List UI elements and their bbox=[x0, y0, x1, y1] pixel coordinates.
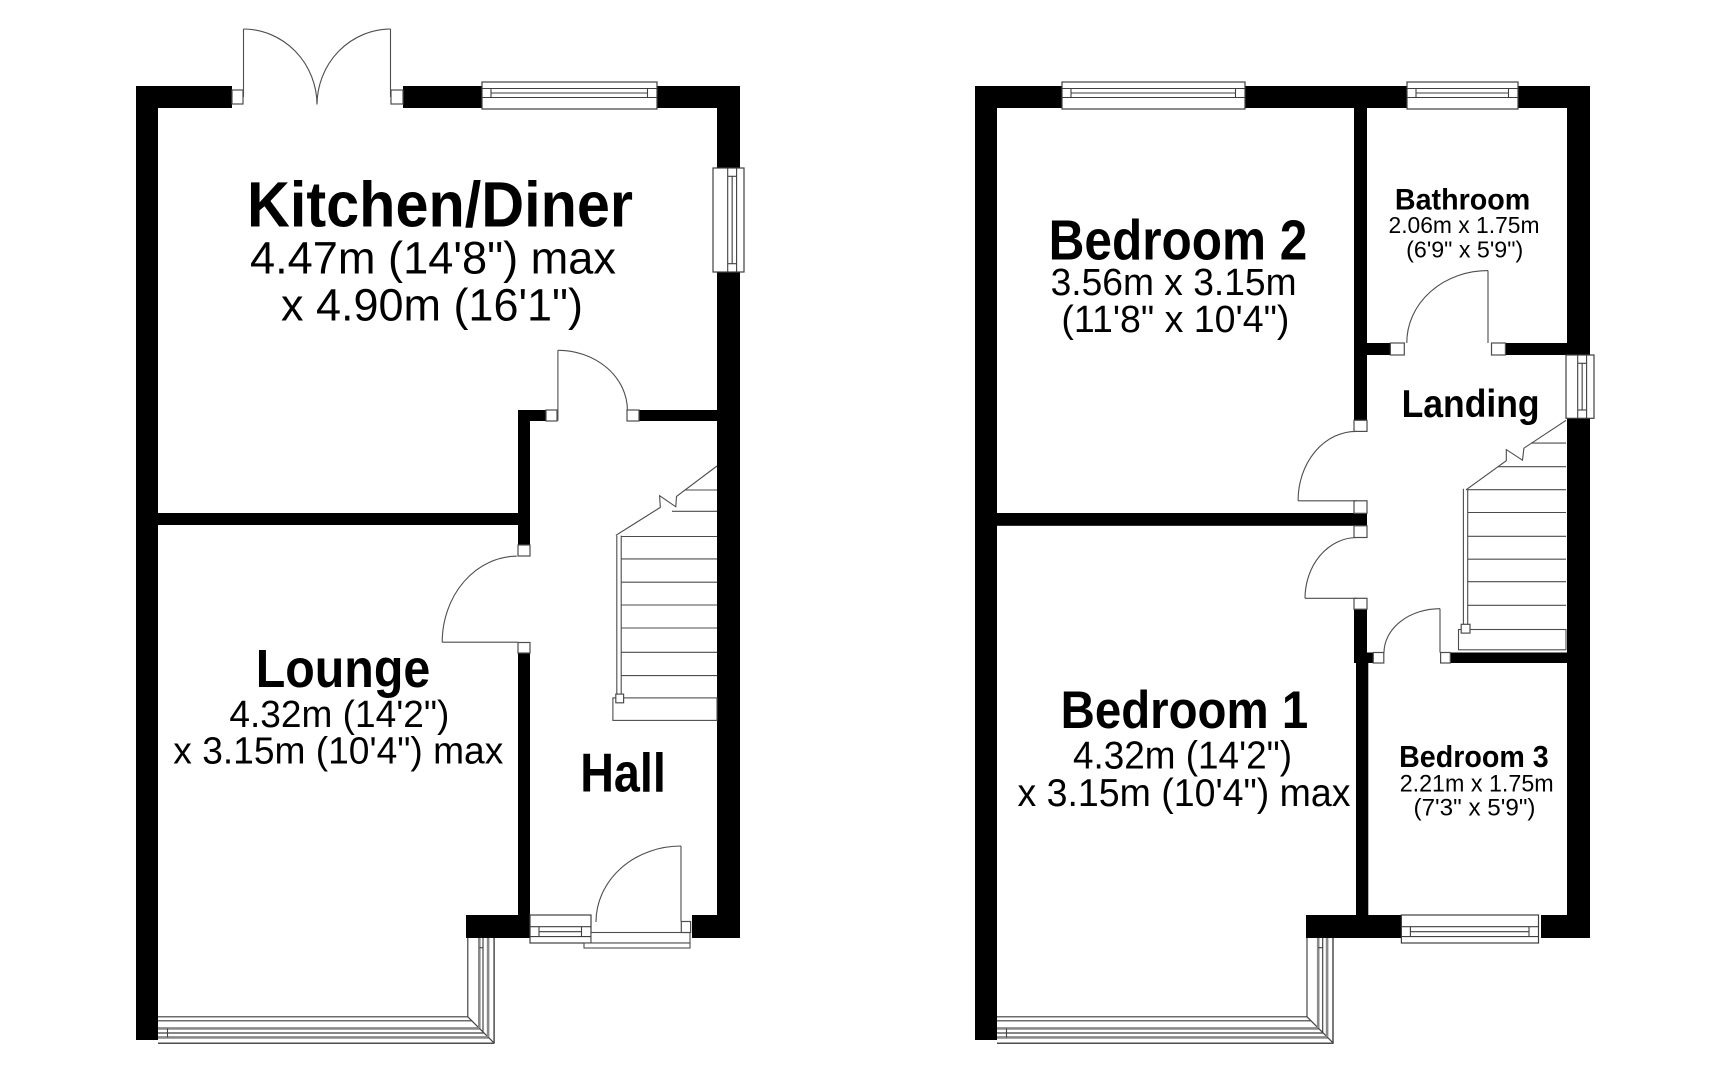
svg-text:Bedroom 1: Bedroom 1 bbox=[1061, 681, 1309, 740]
svg-text:4.47m (14'8") max: 4.47m (14'8") max bbox=[250, 233, 617, 284]
svg-text:(7'3" x 5'9"): (7'3" x 5'9") bbox=[1414, 795, 1536, 822]
svg-text:Kitchen/Diner: Kitchen/Diner bbox=[247, 169, 633, 241]
svg-text:x 3.15m (10'4") max: x 3.15m (10'4") max bbox=[173, 731, 503, 773]
svg-text:2.06m x 1.75m: 2.06m x 1.75m bbox=[1389, 212, 1540, 238]
svg-text:Landing: Landing bbox=[1402, 383, 1540, 426]
svg-text:(11'8" x 10'4"): (11'8" x 10'4") bbox=[1061, 299, 1289, 341]
svg-text:2.21m x 1.75m: 2.21m x 1.75m bbox=[1400, 770, 1554, 797]
svg-text:x 3.15m (10'4") max: x 3.15m (10'4") max bbox=[1018, 772, 1351, 815]
svg-text:(6'9" x 5'9"): (6'9" x 5'9") bbox=[1406, 237, 1523, 263]
svg-text:Lounge: Lounge bbox=[256, 639, 431, 699]
svg-text:Bedroom 3: Bedroom 3 bbox=[1399, 739, 1549, 774]
svg-text:3.56m x 3.15m: 3.56m x 3.15m bbox=[1051, 262, 1297, 304]
svg-text:Hall: Hall bbox=[580, 741, 666, 803]
svg-text:x 4.90m (16'1"): x 4.90m (16'1") bbox=[281, 279, 583, 330]
